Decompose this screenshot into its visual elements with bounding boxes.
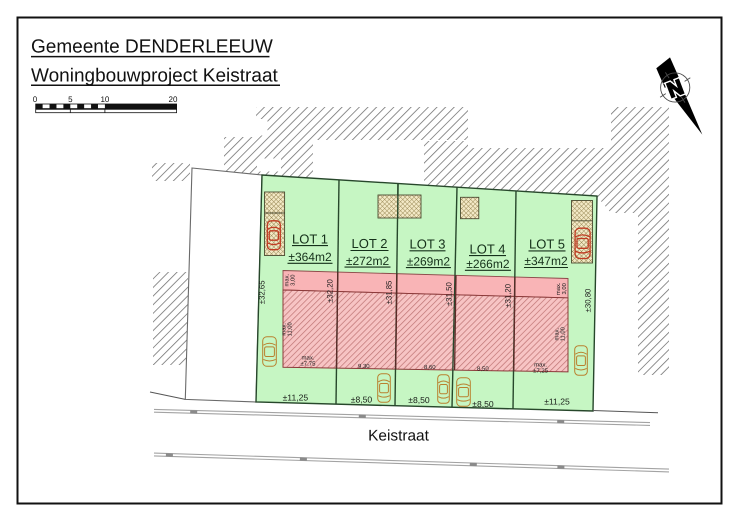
- svg-text:Gemeente DENDERLEEUW: Gemeente DENDERLEEUW: [31, 37, 273, 58]
- svg-text:LOT 1: LOT 1: [292, 231, 328, 246]
- svg-text:5: 5: [68, 95, 73, 104]
- svg-text:LOT 3: LOT 3: [410, 237, 446, 252]
- svg-text:±31,85: ±31,85: [385, 280, 394, 304]
- svg-text:3,00: 3,00: [561, 283, 568, 294]
- svg-text:LOT 5: LOT 5: [529, 237, 565, 252]
- svg-text:±7,25: ±7,25: [533, 368, 549, 375]
- svg-text:±347m2: ±347m2: [524, 254, 568, 268]
- svg-text:3,00: 3,00: [289, 275, 296, 286]
- svg-text:8,50: 8,50: [477, 366, 489, 373]
- svg-text:±364m2: ±364m2: [288, 250, 332, 264]
- svg-text:±8,50: ±8,50: [472, 399, 494, 409]
- svg-text:±32,65: ±32,65: [257, 280, 266, 304]
- svg-text:±11,25: ±11,25: [283, 393, 309, 403]
- svg-text:20: 20: [169, 95, 178, 104]
- svg-text:±272m2: ±272m2: [346, 254, 390, 268]
- svg-text:11,00: 11,00: [287, 322, 294, 336]
- svg-text:8,60: 8,60: [424, 364, 436, 371]
- svg-text:±7,75: ±7,75: [301, 361, 317, 368]
- svg-text:±31,50: ±31,50: [444, 282, 453, 306]
- svg-text:±8,50: ±8,50: [408, 395, 430, 405]
- svg-text:11,00: 11,00: [560, 327, 567, 341]
- svg-text:±269m2: ±269m2: [407, 254, 451, 268]
- svg-text:0: 0: [33, 95, 38, 104]
- svg-text:±30,80: ±30,80: [584, 288, 593, 312]
- svg-text:9,30: 9,30: [358, 363, 370, 370]
- svg-text:Keistraat: Keistraat: [368, 428, 429, 445]
- svg-text:10: 10: [100, 95, 109, 104]
- svg-text:±8,50: ±8,50: [351, 395, 373, 405]
- svg-text:Woningbouwproject Keistraat: Woningbouwproject Keistraat: [31, 66, 279, 87]
- svg-text:±31,20: ±31,20: [503, 283, 512, 307]
- svg-text:LOT 4: LOT 4: [470, 241, 506, 256]
- svg-text:±32,20: ±32,20: [325, 278, 334, 302]
- svg-text:±11,25: ±11,25: [544, 397, 570, 407]
- svg-text:±266m2: ±266m2: [466, 257, 510, 271]
- svg-text:LOT 2: LOT 2: [352, 236, 388, 251]
